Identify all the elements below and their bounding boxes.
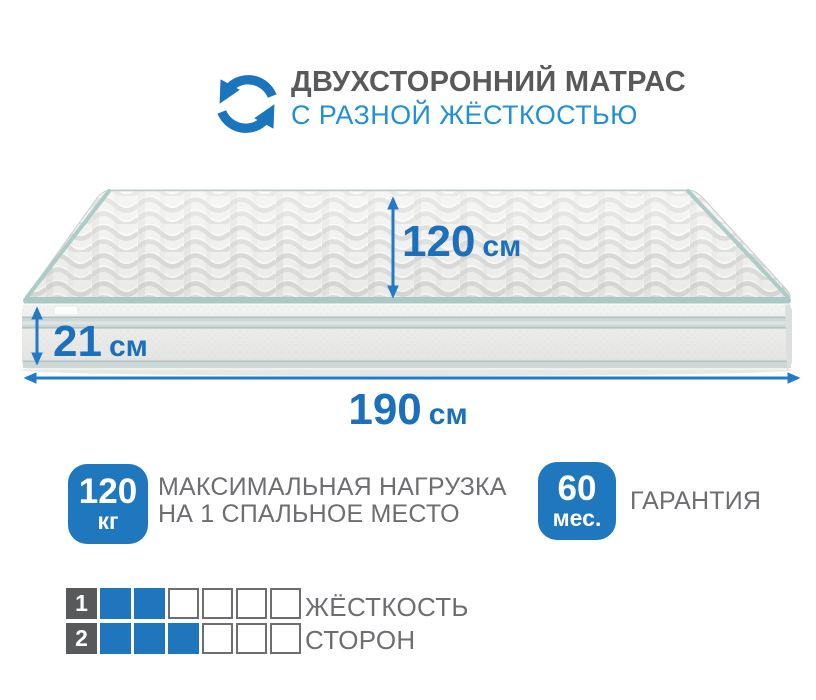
depth-dimension-label: 120см <box>402 220 521 264</box>
warranty-unit: мес. <box>553 506 602 530</box>
max-load-label: МАКСИМАЛЬНАЯ НАГРУЗКА НА 1 СПАЛЬНОЕ МЕСТ… <box>158 474 507 528</box>
rotate-arrows-icon <box>211 64 283 144</box>
max-load-label-line2: НА 1 СПАЛЬНОЕ МЕСТО <box>158 501 507 528</box>
depth-value: 120 <box>402 217 475 266</box>
depth-unit: см <box>482 230 521 263</box>
firmness-empty-square <box>270 588 301 619</box>
firmness-empty-square <box>202 623 233 654</box>
warranty-label-line1: ГАРАНТИЯ <box>630 488 761 515</box>
firmness-filled-square <box>134 623 165 654</box>
page-subtitle: С РАЗНОЙ ЖЁСТКОСТЬЮ <box>291 101 638 131</box>
height-value: 21 <box>53 317 102 366</box>
firmness-label-line1: ЖЁСТКОСТЬ <box>305 591 469 624</box>
firmness-label: ЖЁСТКОСТЬ СТОРОН <box>305 591 469 657</box>
warranty-badge: 60 мес. <box>538 462 616 540</box>
height-dimension-label: 21см <box>53 320 148 364</box>
firmness-empty-square <box>202 588 233 619</box>
max-load-label-line1: МАКСИМАЛЬНАЯ НАГРУЗКА <box>158 474 507 501</box>
page-title: ДВУХСТОРОННИЙ МАТРАС <box>291 67 686 99</box>
firmness-filled-square <box>134 588 165 619</box>
firmness-empty-square <box>236 623 267 654</box>
length-dimension-label: 190см <box>0 388 816 432</box>
warranty-value: 60 <box>558 472 597 505</box>
side-number-square: 2 <box>66 623 97 654</box>
firmness-filled-square <box>168 623 199 654</box>
length-unit: см <box>429 398 468 431</box>
side-number-square: 1 <box>66 588 97 619</box>
mattress-infographic: ДВУХСТОРОННИЙ МАТРАС С РАЗНОЙ ЖЁСТКОСТЬЮ <box>0 0 816 700</box>
firmness-filled-square <box>100 623 131 654</box>
warranty-label: ГАРАНТИЯ <box>630 488 761 515</box>
max-load-badge: 120 кг <box>68 464 148 544</box>
mattress-illustration <box>0 170 816 400</box>
firmness-empty-square <box>168 588 199 619</box>
firmness-row: 2 <box>66 623 301 654</box>
height-unit: см <box>109 330 148 363</box>
length-value: 190 <box>348 385 421 434</box>
max-load-unit: кг <box>97 509 118 533</box>
firmness-label-line2: СТОРОН <box>305 624 469 657</box>
firmness-rows: 12 <box>66 588 301 658</box>
firmness-empty-square <box>270 623 301 654</box>
firmness-filled-square <box>100 588 131 619</box>
firmness-empty-square <box>236 588 267 619</box>
max-load-value: 120 <box>79 475 137 508</box>
mattress-tag <box>54 306 78 315</box>
firmness-row: 1 <box>66 588 301 619</box>
